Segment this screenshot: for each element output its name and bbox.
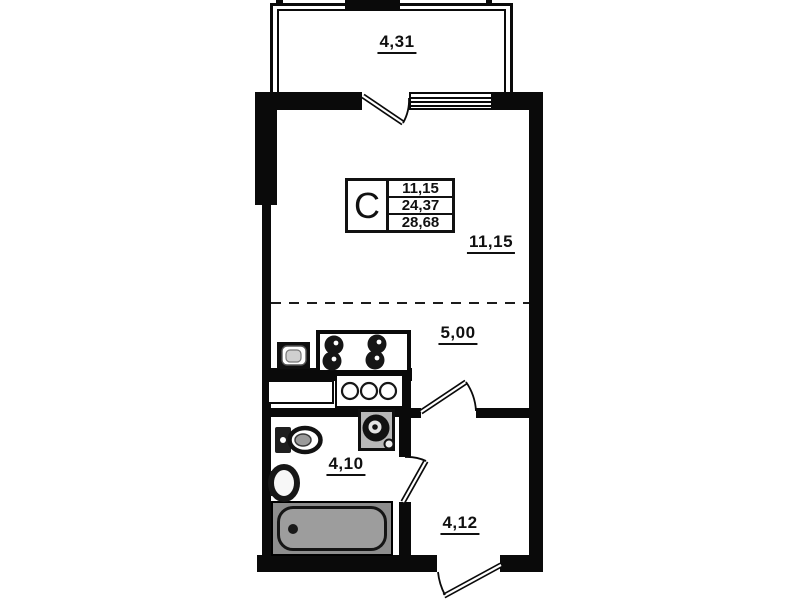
unit-area-living: 11,15 (389, 181, 452, 196)
plan-vector-overlay (0, 0, 799, 600)
stove-burners-icon (323, 335, 387, 371)
kitchen-sink-bowl-icon (282, 346, 306, 365)
floor-plan: 4,31 С 11,15 24,37 28,68 11,15 5,00 4,10… (0, 0, 799, 600)
hallway-area-label: 4,12 (440, 514, 479, 535)
bathroom-area-label: 4,10 (326, 455, 365, 476)
unit-area-with-balcony: 28,68 (389, 213, 452, 230)
toilet-bowl-icon (280, 428, 321, 452)
balcony-door-swing-icon (363, 96, 409, 123)
balcony-area-label: 4,31 (377, 33, 416, 54)
unit-info-box: С 11,15 24,37 28,68 (345, 178, 455, 233)
washbasin-bowl-icon (363, 415, 394, 449)
bathtub-drain-icon (288, 524, 298, 534)
corner-sink-icon (270, 467, 297, 499)
entrance-door-swing-icon (438, 565, 501, 596)
unit-area-total: 24,37 (389, 196, 452, 213)
unit-type-label: С (348, 181, 389, 230)
counter-circles-icon (342, 383, 396, 399)
bathroom-door-swing-icon (403, 457, 426, 502)
living-area-label: 11,15 (467, 233, 515, 254)
hall-door-swing-icon (421, 382, 476, 412)
kitchen-area-label: 5,00 (438, 324, 477, 345)
